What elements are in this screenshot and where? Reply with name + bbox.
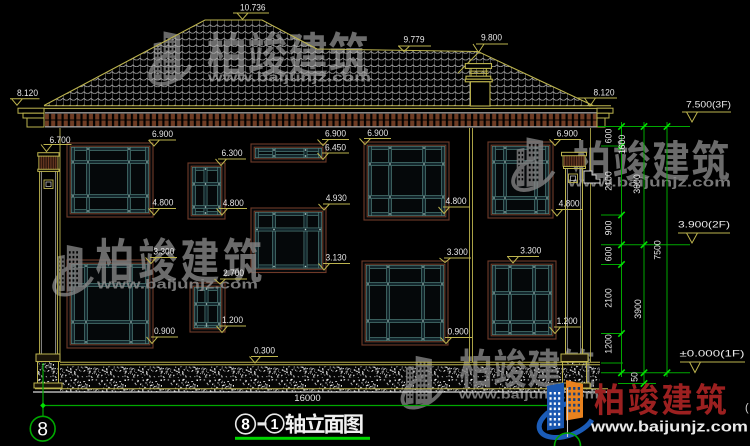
svg-text:6.900: 6.900 [325,129,346,139]
svg-text:600: 600 [604,247,614,262]
svg-text:6.900: 6.900 [557,128,578,138]
svg-text:4.800: 4.800 [152,198,173,208]
svg-text:2100: 2100 [604,171,614,191]
svg-text:2.700: 2.700 [223,268,244,278]
svg-text:600: 600 [604,129,614,144]
svg-text:3.300: 3.300 [447,247,468,257]
svg-text:6.450: 6.450 [325,142,346,152]
svg-text:www.baijunjz.com: www.baijunjz.com [590,419,748,436]
svg-text:1.200: 1.200 [557,316,578,326]
svg-text:1.200: 1.200 [222,315,243,325]
svg-text:6.900: 6.900 [367,128,388,138]
svg-text:6.300: 6.300 [222,148,243,158]
svg-text:0.300: 0.300 [254,346,275,356]
svg-text:3900: 3900 [633,299,643,319]
svg-text:1200: 1200 [604,334,614,354]
svg-text:3.300: 3.300 [520,246,541,256]
svg-text:9.800: 9.800 [481,33,502,43]
svg-text:8: 8 [241,417,250,434]
svg-text:4.800: 4.800 [559,199,580,209]
svg-text:4.800: 4.800 [446,196,467,206]
svg-text:16000: 16000 [294,393,320,404]
svg-text:900: 900 [604,221,614,236]
svg-text:1: 1 [270,417,278,433]
svg-text:3.900(2F): 3.900(2F) [678,220,730,230]
svg-text:9.779: 9.779 [404,35,425,45]
svg-text:4.930: 4.930 [326,193,347,203]
svg-text:8.120: 8.120 [594,88,615,98]
svg-text:3.300: 3.300 [153,247,174,257]
svg-text:6.900: 6.900 [152,129,173,139]
svg-text:50: 50 [630,372,640,382]
svg-text:2100: 2100 [604,288,614,308]
svg-text:7500: 7500 [653,240,663,260]
svg-text:6.700: 6.700 [50,135,71,145]
svg-text:0.900: 0.900 [154,326,175,336]
svg-text:8.120: 8.120 [17,88,38,98]
svg-text:±0.000(1F): ±0.000(1F) [680,349,745,359]
svg-text:8: 8 [37,420,48,441]
svg-text:0.900: 0.900 [448,327,469,337]
svg-text:10.736: 10.736 [240,3,266,13]
svg-text:4.800: 4.800 [223,198,244,208]
svg-text:7.500(3F): 7.500(3F) [686,100,731,110]
svg-text:3.130: 3.130 [326,253,347,263]
svg-text:(: ( [745,402,749,414]
svg-text:1600: 1600 [617,135,627,155]
svg-text:3600: 3600 [632,174,642,194]
